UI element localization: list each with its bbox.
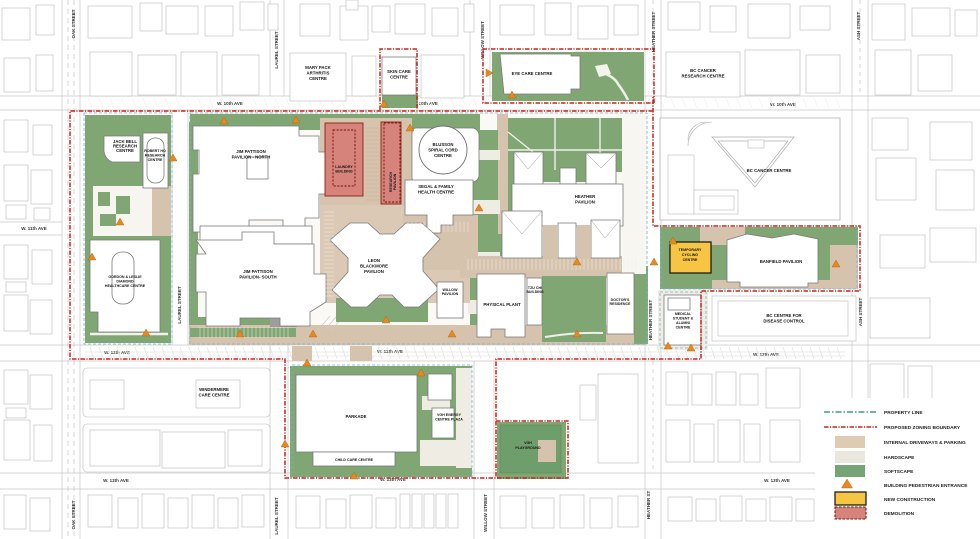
svg-text:CENTRE: CENTRE bbox=[116, 148, 134, 153]
svg-text:HEATHER ST: HEATHER ST bbox=[646, 491, 651, 520]
svg-text:BLUSSON: BLUSSON bbox=[432, 142, 453, 147]
svg-text:PAVILION- SOUTH: PAVILION- SOUTH bbox=[239, 275, 276, 280]
svg-text:LAUREL STREET: LAUREL STREET bbox=[177, 286, 182, 323]
svg-text:LAUNDRY: LAUNDRY bbox=[335, 165, 353, 169]
svg-text:CENTRE: CENTRE bbox=[309, 76, 327, 81]
svg-text:PROPOSED ZONING BOUNDARY: PROPOSED ZONING BOUNDARY bbox=[884, 425, 961, 431]
svg-text:VGH: VGH bbox=[524, 441, 532, 445]
svg-text:NEW CONSTRUCTION: NEW CONSTRUCTION bbox=[884, 497, 936, 503]
svg-text:BUILDING PEDESTRIAN ENTRANCE: BUILDING PEDESTRIAN ENTRANCE bbox=[884, 483, 968, 489]
svg-text:SPIRAL CORD: SPIRAL CORD bbox=[428, 148, 458, 153]
svg-text:BLACKMORE: BLACKMORE bbox=[360, 264, 388, 269]
svg-text:ARTHRITIS: ARTHRITIS bbox=[307, 71, 330, 76]
svg-text:CENTRE: CENTRE bbox=[148, 158, 163, 162]
svg-text:BANFIELD PAVILION: BANFIELD PAVILION bbox=[760, 259, 803, 264]
svg-text:HEATHER: HEATHER bbox=[575, 194, 596, 199]
svg-text:WILLOW STREET: WILLOW STREET bbox=[483, 494, 488, 532]
svg-text:BC CENTRE FOR: BC CENTRE FOR bbox=[766, 313, 802, 318]
svg-text:CENTRE: CENTRE bbox=[683, 258, 698, 262]
svg-text:SEGAL & FAMILY: SEGAL & FAMILY bbox=[418, 184, 454, 189]
svg-text:W. 11th AVE: W. 11th AVE bbox=[21, 226, 47, 231]
svg-text:DISEASE CONTROL: DISEASE CONTROL bbox=[763, 319, 805, 324]
svg-text:OAK STREET: OAK STREET bbox=[71, 500, 76, 529]
svg-text:W. 10th AVE: W. 10th AVE bbox=[217, 101, 243, 106]
svg-text:JIM PATTISON: JIM PATTISON bbox=[236, 149, 265, 154]
svg-text:PLAYGROUND: PLAYGROUND bbox=[515, 446, 541, 450]
svg-text:EYE CARE CENTRE: EYE CARE CENTRE bbox=[512, 71, 553, 76]
svg-text:W. 13th AVE: W. 13th AVE bbox=[764, 478, 790, 483]
svg-text:W. 12th AVE: W. 12th AVE bbox=[377, 349, 403, 354]
svg-text:PARKADE: PARKADE bbox=[346, 414, 367, 419]
svg-text:CENTRE: CENTRE bbox=[676, 326, 691, 330]
svg-text:HARDSCAPE: HARDSCAPE bbox=[884, 455, 915, 461]
svg-text:BC CANCER CENTRE: BC CANCER CENTRE bbox=[747, 168, 792, 173]
svg-text:HEALTH CENTRE: HEALTH CENTRE bbox=[418, 190, 454, 195]
svg-text:ROBERT HO: ROBERT HO bbox=[144, 149, 166, 153]
svg-text:JIM PATTISON: JIM PATTISON bbox=[243, 269, 272, 274]
svg-text:PAVILION - NORTH: PAVILION - NORTH bbox=[232, 155, 271, 160]
svg-text:CENTRE PLAZA: CENTRE PLAZA bbox=[435, 418, 463, 422]
svg-text:RESIDENCE: RESIDENCE bbox=[610, 302, 632, 306]
svg-text:ALUMNI: ALUMNI bbox=[676, 321, 690, 325]
svg-text:PROPERTY LINE: PROPERTY LINE bbox=[884, 410, 923, 416]
svg-text:INTERNAL DRIVEWAYS & PARKING: INTERNAL DRIVEWAYS & PARKING bbox=[884, 440, 966, 446]
svg-text:CENTRE: CENTRE bbox=[390, 75, 408, 80]
svg-text:CHILD CARE CENTRE: CHILD CARE CENTRE bbox=[335, 458, 374, 462]
svg-text:PAVILION: PAVILION bbox=[575, 200, 595, 205]
svg-text:WILLOW STREET: WILLOW STREET bbox=[480, 21, 485, 59]
svg-text:MEDICAL: MEDICAL bbox=[675, 312, 692, 316]
svg-text:W. 13th AVE: W. 13th AVE bbox=[103, 478, 129, 483]
svg-text:OAK STREET: OAK STREET bbox=[71, 9, 76, 38]
svg-text:ASH STREET: ASH STREET bbox=[856, 12, 861, 41]
svg-text:BUILDING: BUILDING bbox=[335, 170, 353, 174]
svg-text:LAUREL STREET: LAUREL STREET bbox=[274, 31, 279, 68]
svg-text:ASH STREET: ASH STREET bbox=[858, 298, 863, 327]
svg-text:LEON: LEON bbox=[368, 258, 380, 263]
svg-text:PAVILION: PAVILION bbox=[393, 173, 397, 190]
svg-text:TEMPORARY: TEMPORARY bbox=[679, 248, 702, 252]
svg-text:DIAMOND: DIAMOND bbox=[116, 280, 134, 284]
svg-text:WINDERMERE: WINDERMERE bbox=[199, 387, 229, 392]
svg-text:VGH ENERGY: VGH ENERGY bbox=[437, 413, 462, 417]
svg-text:RESEARCH CENTRE: RESEARCH CENTRE bbox=[682, 74, 725, 79]
svg-text:MARY PACK: MARY PACK bbox=[305, 65, 331, 70]
svg-text:HEATHER STREET: HEATHER STREET bbox=[651, 12, 656, 53]
svg-text:W. 12th AVE: W. 12th AVE bbox=[104, 350, 130, 355]
svg-text:LAUREL STREET: LAUREL STREET bbox=[274, 497, 279, 534]
svg-text:PAVILION: PAVILION bbox=[442, 292, 459, 296]
svg-text:BC CANCER: BC CANCER bbox=[690, 68, 717, 73]
svg-text:PHYSICAL PLANT: PHYSICAL PLANT bbox=[483, 302, 521, 307]
svg-text:BUILDING: BUILDING bbox=[526, 290, 544, 294]
svg-text:CARE CENTRE: CARE CENTRE bbox=[198, 393, 229, 398]
svg-text:CYCLING: CYCLING bbox=[682, 253, 698, 257]
svg-text:STUDENT &: STUDENT & bbox=[673, 317, 694, 321]
svg-text:RESEARCH: RESEARCH bbox=[145, 154, 166, 158]
svg-text:SKIN CARE: SKIN CARE bbox=[387, 69, 411, 74]
svg-text:HEALTHCARE CENTRE: HEALTHCARE CENTRE bbox=[105, 284, 146, 288]
svg-text:CENTRE: CENTRE bbox=[434, 153, 452, 158]
svg-text:PAVILION: PAVILION bbox=[364, 269, 384, 274]
svg-text:SOFTSCAPE: SOFTSCAPE bbox=[884, 469, 914, 475]
svg-text:HEATHER STREET: HEATHER STREET bbox=[648, 300, 653, 341]
svg-text:GORDON & LESLIE: GORDON & LESLIE bbox=[108, 275, 142, 279]
svg-text:DEMOLITION: DEMOLITION bbox=[884, 511, 915, 517]
